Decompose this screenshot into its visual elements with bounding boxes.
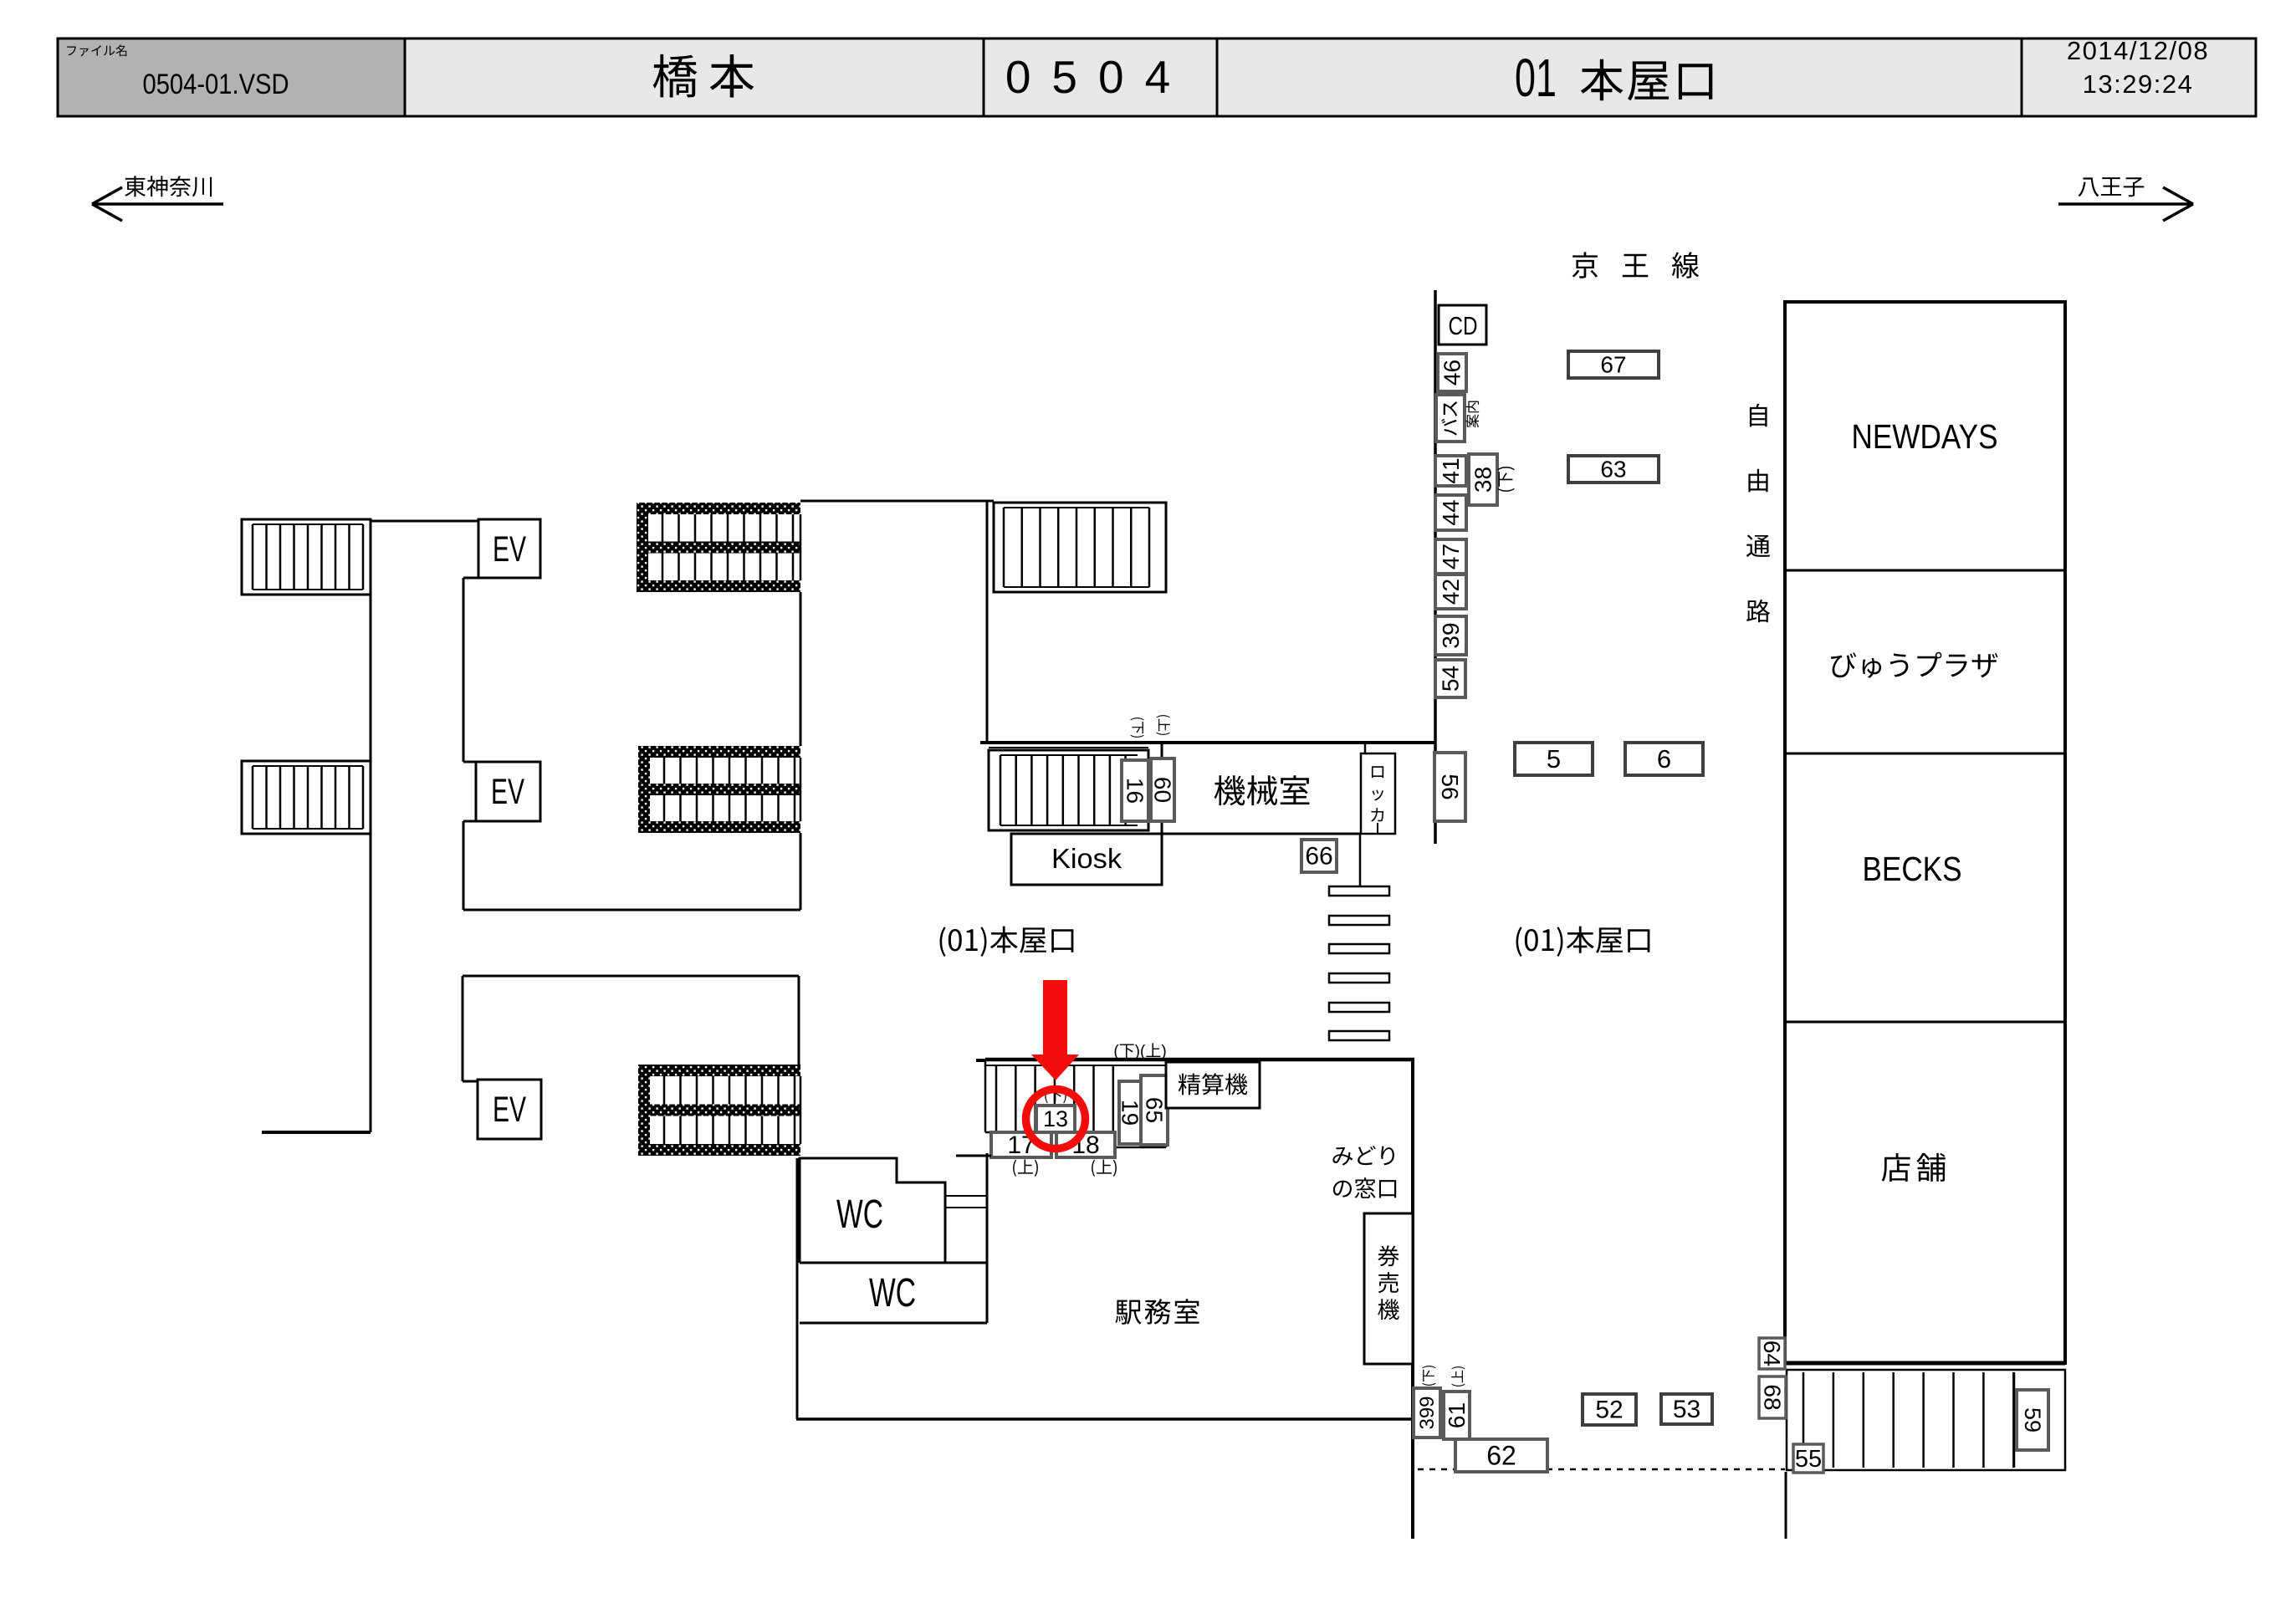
svg-text:2014/12/08: 2014/12/08 xyxy=(2067,36,2209,65)
svg-text:46: 46 xyxy=(1439,360,1465,386)
svg-text:44: 44 xyxy=(1438,499,1464,525)
svg-text:68: 68 xyxy=(1759,1384,1785,1410)
svg-text:16: 16 xyxy=(1122,778,1148,804)
svg-text:CD: CD xyxy=(1449,311,1478,340)
svg-text:59: 59 xyxy=(2020,1407,2045,1432)
svg-text:42: 42 xyxy=(1438,579,1464,605)
svg-text:61: 61 xyxy=(1444,1402,1470,1428)
svg-text:(下)(上): (下)(上) xyxy=(1113,1042,1166,1060)
svg-text:BECKS: BECKS xyxy=(1863,850,1962,888)
svg-text:EV: EV xyxy=(491,772,524,812)
svg-text:0504-01.VSD: 0504-01.VSD xyxy=(143,69,289,100)
svg-text:66: 66 xyxy=(1305,843,1332,871)
svg-text:Kiosk: Kiosk xyxy=(1051,843,1122,874)
svg-text:01: 01 xyxy=(1515,48,1557,108)
svg-text:62: 62 xyxy=(1486,1440,1516,1470)
svg-text:55: 55 xyxy=(1795,1446,1822,1473)
svg-text:EV: EV xyxy=(493,1090,526,1130)
svg-text:EV: EV xyxy=(493,529,526,569)
svg-text:38: 38 xyxy=(1470,467,1496,493)
svg-text:399: 399 xyxy=(1416,1396,1439,1429)
svg-text:64: 64 xyxy=(1759,1341,1785,1366)
svg-text:13: 13 xyxy=(1043,1106,1068,1131)
svg-text:6: 6 xyxy=(1657,744,1671,774)
svg-text:WC: WC xyxy=(869,1271,916,1315)
svg-text:52: 52 xyxy=(1595,1397,1623,1424)
svg-text:0504: 0504 xyxy=(1005,51,1191,103)
svg-text:60: 60 xyxy=(1149,777,1175,803)
svg-text:19: 19 xyxy=(1117,1100,1143,1126)
svg-text:41: 41 xyxy=(1438,457,1464,483)
svg-text:65: 65 xyxy=(1141,1097,1167,1123)
svg-text:NEWDAYS: NEWDAYS xyxy=(1852,417,1998,456)
svg-text:63: 63 xyxy=(1600,457,1626,483)
svg-text:5: 5 xyxy=(1547,744,1561,774)
svg-text:47: 47 xyxy=(1438,544,1464,569)
svg-text:13:29:24: 13:29:24 xyxy=(2083,69,2194,99)
svg-text:53: 53 xyxy=(1673,1396,1700,1423)
svg-text:39: 39 xyxy=(1438,622,1464,648)
svg-text:54: 54 xyxy=(1438,666,1464,692)
svg-text:67: 67 xyxy=(1600,352,1626,378)
svg-text:56: 56 xyxy=(1437,774,1463,799)
svg-text:WC: WC xyxy=(836,1192,883,1237)
